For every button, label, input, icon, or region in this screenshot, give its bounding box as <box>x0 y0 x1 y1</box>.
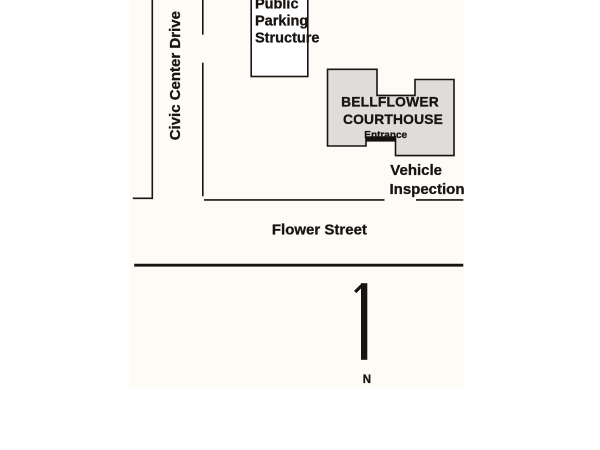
svg-text:Vehicle: Vehicle <box>390 162 442 179</box>
svg-text:Public: Public <box>255 0 299 12</box>
svg-text:BELLFLOWER: BELLFLOWER <box>341 94 439 109</box>
svg-text:Entrance: Entrance <box>364 130 407 141</box>
svg-text:N: N <box>363 374 371 386</box>
svg-text:Structure: Structure <box>255 31 319 47</box>
svg-text:Inspection: Inspection <box>390 181 465 198</box>
svg-text:Parking: Parking <box>255 13 308 29</box>
svg-text:COURTHOUSE: COURTHOUSE <box>343 112 443 127</box>
svg-text:Civic Center Drive: Civic Center Drive <box>167 11 184 140</box>
svg-text:Flower Street: Flower Street <box>272 222 367 239</box>
